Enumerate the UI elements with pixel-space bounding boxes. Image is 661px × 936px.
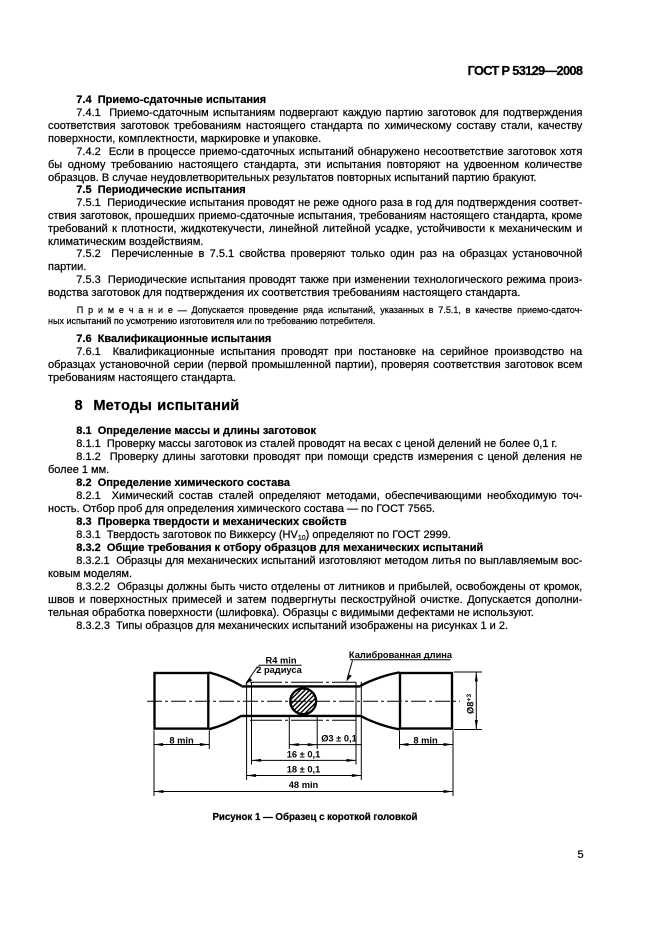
- svg-text:48 min: 48 min: [289, 780, 319, 790]
- svg-text:R4 min: R4 min: [266, 655, 297, 665]
- svg-text:Калиброванная длина: Калиброванная длина: [349, 650, 453, 660]
- svg-text:16 ± 0,1: 16 ± 0,1: [287, 750, 321, 760]
- svg-text:8 min: 8 min: [169, 735, 194, 745]
- svg-text:Ø3 ± 0,1: Ø3 ± 0,1: [321, 734, 357, 744]
- svg-text:Ø8+3: Ø8+3: [466, 694, 476, 714]
- svg-text:8 min: 8 min: [413, 735, 438, 745]
- svg-text:2 радиуса: 2 радиуса: [256, 665, 302, 675]
- svg-text:18 ± 0,1: 18 ± 0,1: [287, 765, 321, 775]
